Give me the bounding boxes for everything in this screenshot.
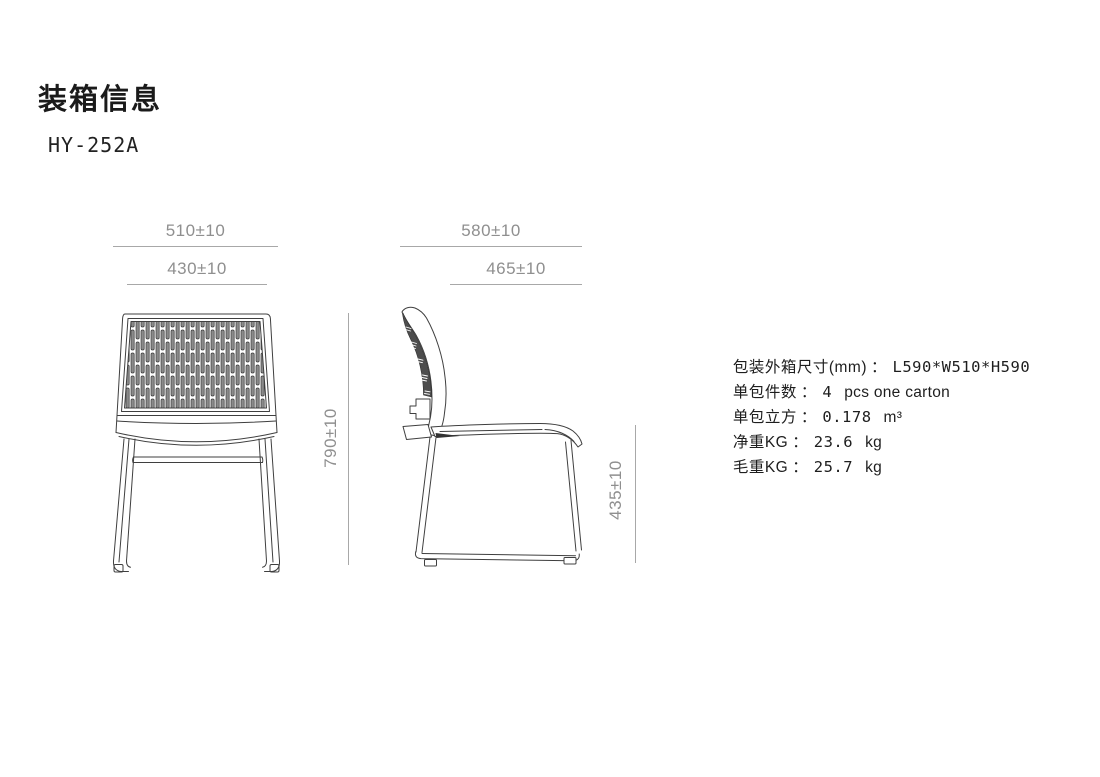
spec-value: 0.178 (822, 408, 871, 426)
front-view-drawing (95, 295, 305, 585)
spec-row-carton-size: 包装外箱尺寸(mm)：L590*W510*H590 (707, 330, 1030, 355)
dim-line-side-outer-depth (400, 246, 582, 247)
spec-colon: ： (801, 409, 817, 426)
dim-line-front-inner-width (127, 284, 267, 285)
dim-side-inner-depth: 465±10 (450, 259, 582, 279)
dim-front-outer-width: 510±10 (113, 221, 278, 241)
dim-line-side-height (635, 425, 636, 563)
side-view-drawing (390, 295, 610, 585)
spec-value: 23.6 (814, 433, 853, 451)
spec-label: 单包件数 (733, 384, 797, 401)
dim-line-front-outer-width (113, 246, 278, 247)
spec-value: 4 (822, 383, 832, 401)
spec-unit: m³ (884, 409, 903, 426)
model-number: HY-252A (48, 133, 139, 157)
dim-front-height: 790±10 (321, 383, 341, 493)
page-title: 装箱信息 (38, 76, 162, 118)
packing-info-page: 装箱信息 HY-252A 510±10 430±10 790±10 580±10… (0, 0, 1100, 777)
spec-colon: ： (792, 434, 808, 451)
spec-colon: ： (792, 459, 808, 476)
dim-line-front-height (348, 313, 349, 565)
spec-label: 单包立方 (733, 409, 797, 426)
dim-front-inner-width: 430±10 (127, 259, 267, 279)
dim-side-outer-depth: 580±10 (400, 221, 582, 241)
spec-label: 净重KG (733, 434, 788, 451)
spec-label: 毛重KG (733, 459, 788, 476)
spec-label: 包装外箱尺寸(mm) (733, 359, 867, 376)
dim-line-side-inner-depth (450, 284, 582, 285)
spec-value: 25.7 (814, 458, 853, 476)
spec-unit: kg (865, 459, 882, 476)
spec-colon: ： (871, 359, 887, 376)
spec-colon: ： (801, 384, 817, 401)
spec-unit: pcs one carton (844, 384, 950, 401)
spec-value: L590*W510*H590 (893, 358, 1031, 376)
spec-unit: kg (865, 434, 882, 451)
packing-specs: 包装外箱尺寸(mm)：L590*W510*H590 单包件数：4pcs one … (707, 330, 1030, 455)
